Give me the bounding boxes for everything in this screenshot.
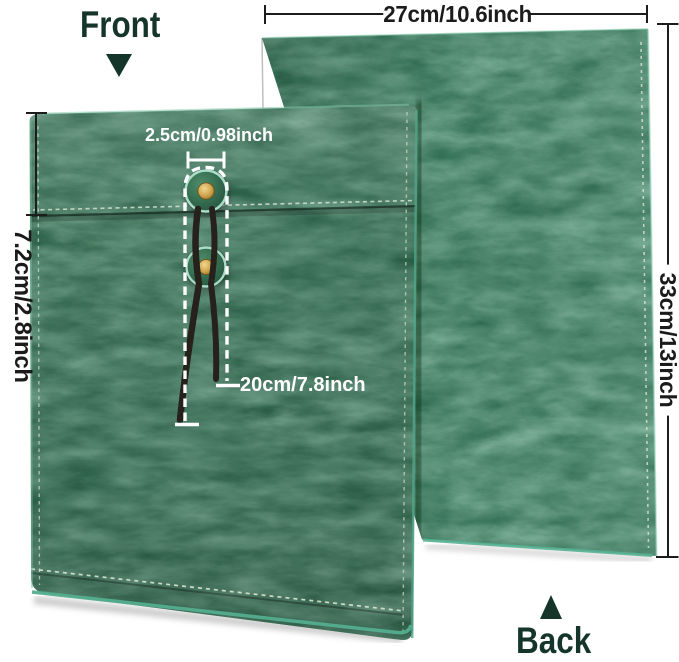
product-photo-scene: Front Back 27cm/10.6inch 33cm/13inch 7.2… [0,0,679,662]
flap-dimension-label: 7.2cm/2.8inch [8,229,36,383]
button-gap-label: 2.5cm/0.98inch [145,126,273,146]
width-dimension-label: 27cm/10.6inch [383,1,529,27]
height-dimension-label: 33cm/13inch [655,265,679,416]
envelope-product-illustration [0,0,679,662]
back-view-label: Back [516,620,591,662]
top-button-grommet [198,183,214,199]
string-length-label: 20cm/7.8inch [240,374,366,396]
triangle-down-icon [106,54,132,77]
front-view-label: Front [80,4,160,46]
front-envelope [20,95,430,655]
triangle-up-icon [540,595,562,619]
